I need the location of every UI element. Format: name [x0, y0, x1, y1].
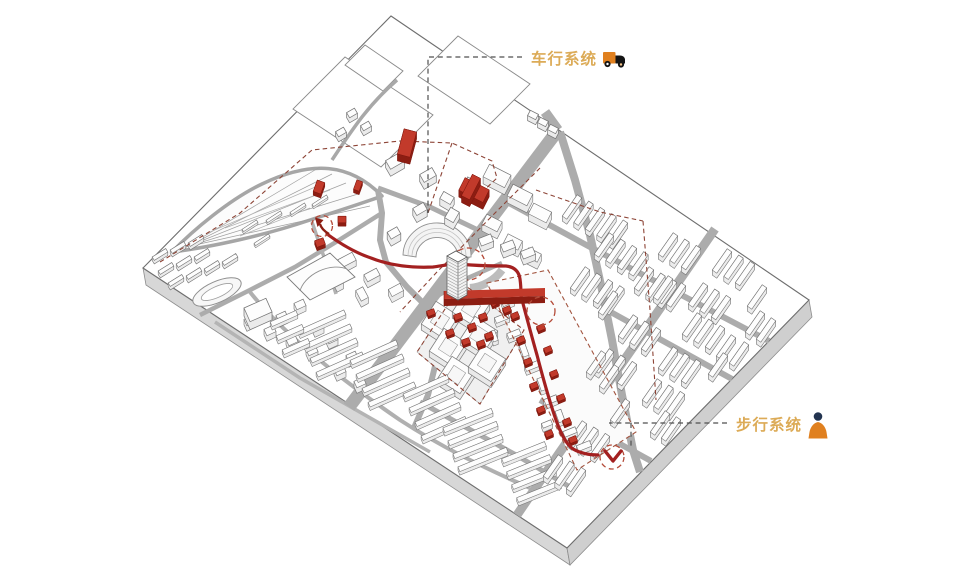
svg-text:步行系统: 步行系统 [736, 415, 802, 434]
svg-text:车行系统: 车行系统 [531, 49, 597, 68]
